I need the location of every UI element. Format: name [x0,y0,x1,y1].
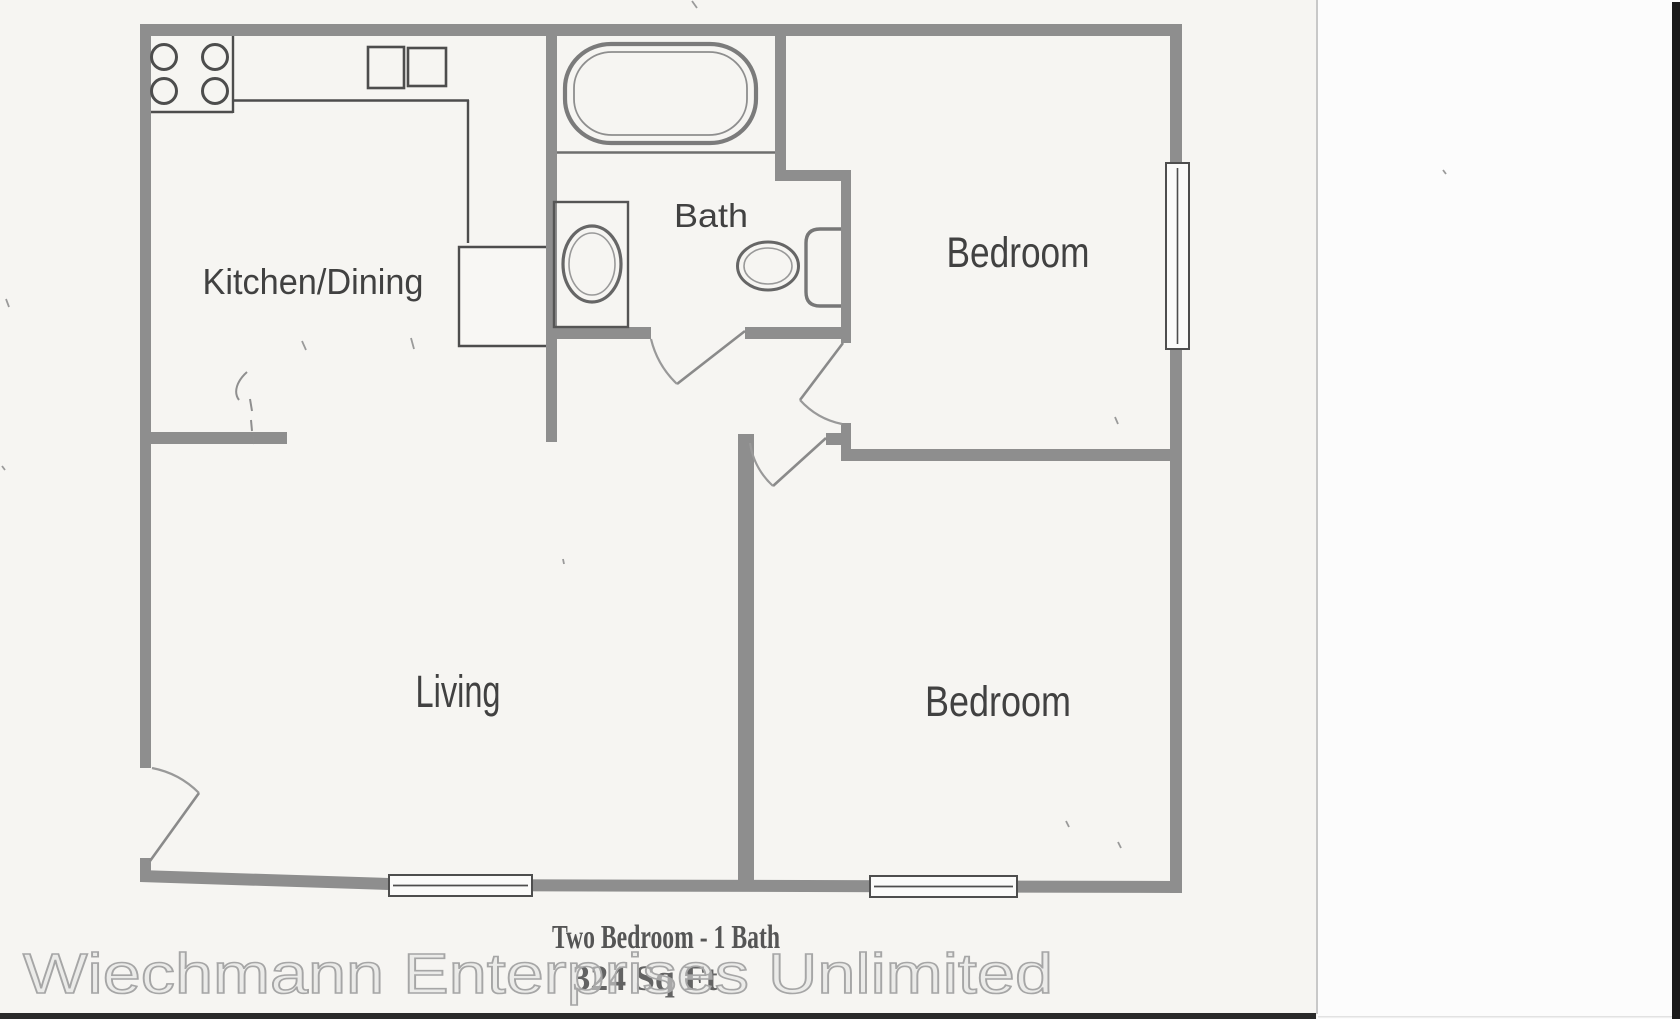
svg-text:Bedroom: Bedroom [925,678,1071,726]
svg-text:Wiechmann Enterprises Unlimite: Wiechmann Enterprises Unlimited [23,942,1053,1006]
svg-text:Bath: Bath [674,197,748,234]
svg-text:Kitchen/Dining: Kitchen/Dining [203,261,424,302]
svg-text:Bedroom: Bedroom [947,229,1090,277]
svg-text:Living: Living [416,666,501,717]
